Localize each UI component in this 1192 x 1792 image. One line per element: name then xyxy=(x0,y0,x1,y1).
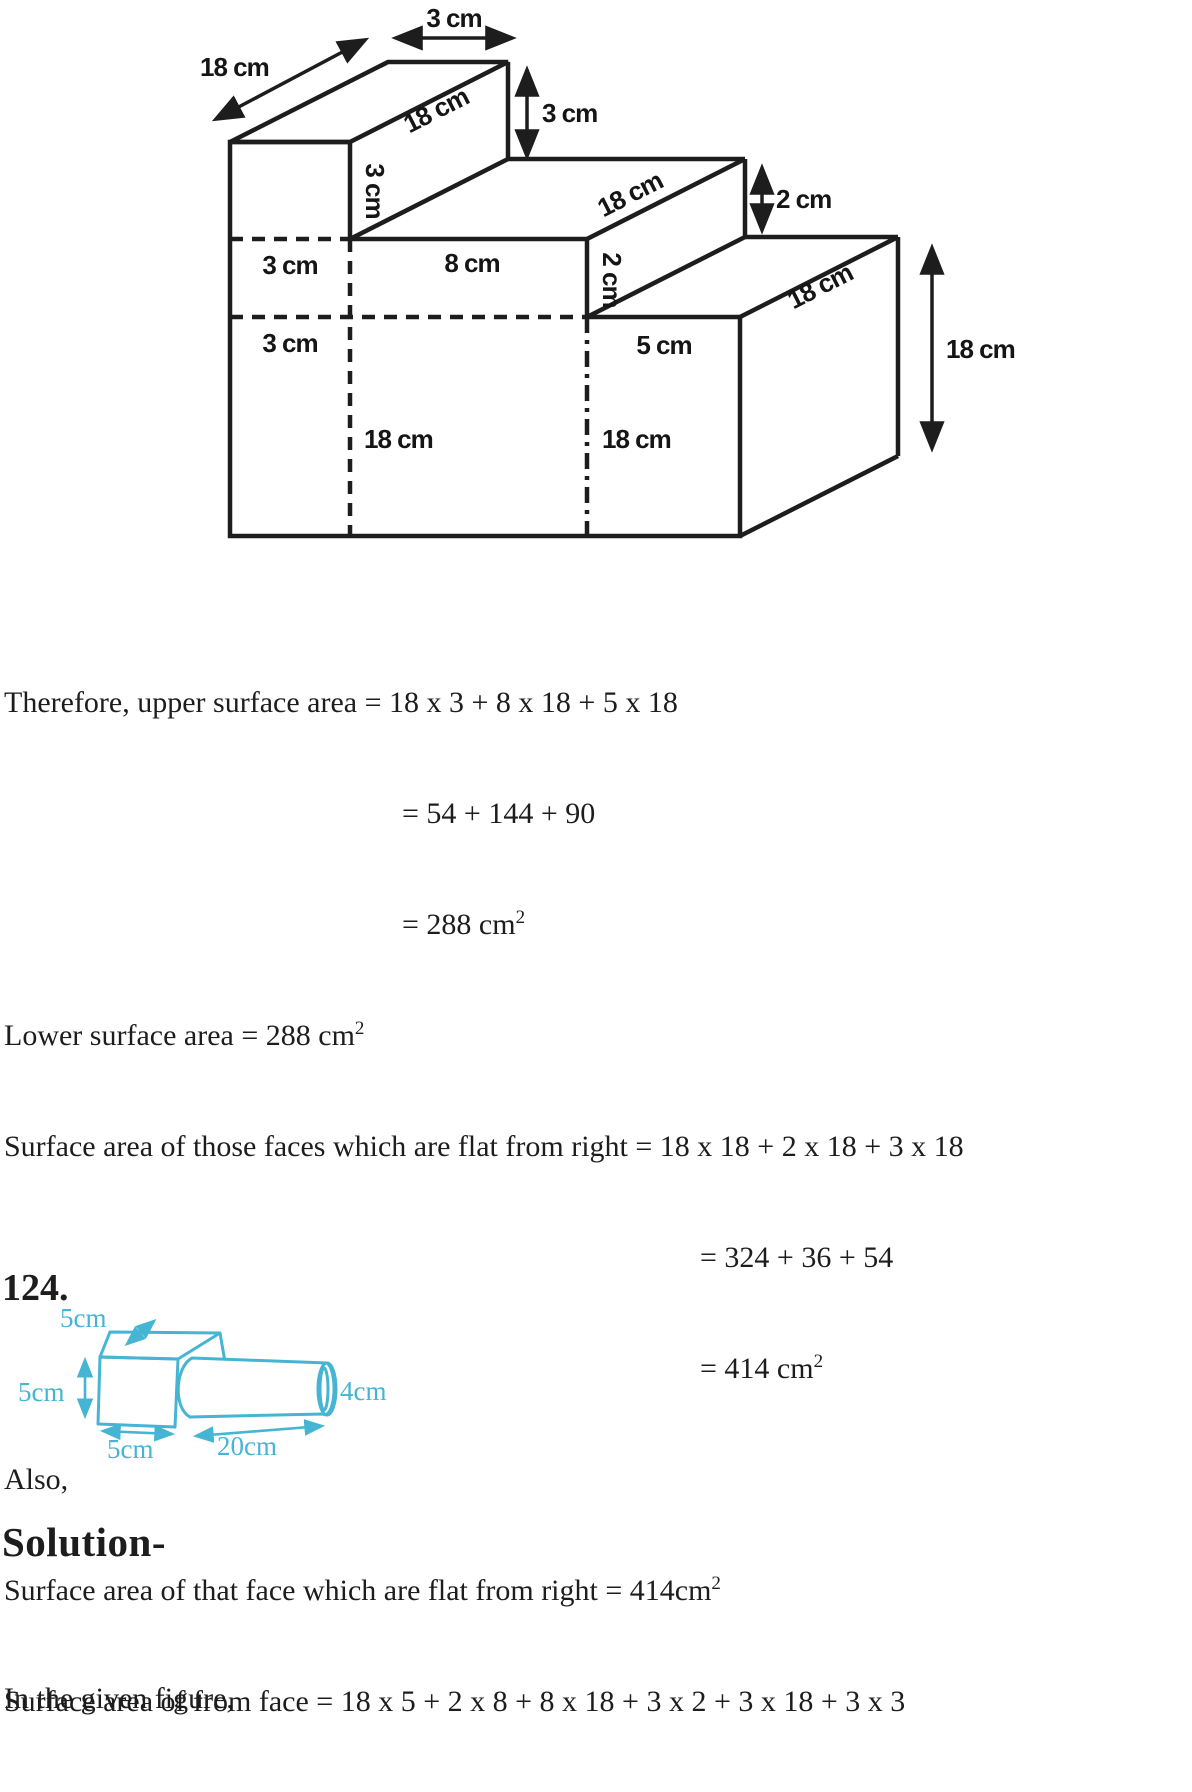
solution-line: Lower surface area = 288 cm2 xyxy=(4,1017,964,1054)
solution-line: In the given figure, xyxy=(4,1679,1077,1718)
line-text: = 324 + 36 + 54 xyxy=(700,1241,893,1274)
cylinder-body xyxy=(178,1358,334,1417)
dim-cylinder-diameter: 4cm xyxy=(340,1376,387,1406)
dim-bottom-mid-height: 18 cm xyxy=(602,424,671,454)
superscript: 2 xyxy=(814,1351,824,1372)
line-text: = 288 cm xyxy=(402,908,516,941)
dim-step2-edge: 2 cm xyxy=(597,252,627,307)
dim-step1-height: 3 cm xyxy=(542,98,597,128)
solution-line: = 288 cm2 xyxy=(402,906,964,943)
cube-cylinder-figure: 5cm 5cm 5cm 20cm 4cm xyxy=(10,1300,410,1478)
line-text: = 54 + 144 + 90 xyxy=(402,797,595,830)
line-text: Lower surface area = 288 cm xyxy=(4,1019,355,1052)
hidden-lines xyxy=(230,239,587,536)
staircase-figure: 3 cm 18 cm 18 cm 3 cm 3 cm 18 cm 2 cm 3 … xyxy=(172,6,1052,554)
dim-mid-step-depth: 18 cm xyxy=(592,165,667,223)
dim-row1-left: 3 cm xyxy=(262,250,317,280)
dim-cylinder-length: 20cm xyxy=(217,1431,277,1461)
cube-top-face xyxy=(100,1332,220,1359)
cube-front-face xyxy=(98,1357,178,1427)
superscript: 2 xyxy=(516,907,526,928)
solution-line: = 414 cm2 xyxy=(700,1350,964,1387)
solution-line: Therefore, upper surface area = 18 x 3 +… xyxy=(4,684,964,721)
dim-top-step-face-depth: 18 cm xyxy=(398,81,473,139)
solution-line: Surface area of those faces which are fl… xyxy=(4,1128,964,1165)
solution-line: = 324 + 36 + 54 xyxy=(700,1239,964,1276)
dim-mid-width: 8 cm xyxy=(444,248,499,278)
solution-block-2: In the given figure, There is a cube of … xyxy=(4,1601,1077,1792)
dim-cube-height: 5cm xyxy=(18,1377,65,1407)
dim-bottom-left-height: 18 cm xyxy=(364,424,433,454)
superscript: 2 xyxy=(355,1018,365,1039)
solution-line: = 54 + 144 + 90 xyxy=(402,795,964,832)
line-text: = 414 cm xyxy=(700,1352,814,1385)
line-text: In the given figure, xyxy=(4,1682,234,1715)
dim-top-width: 3 cm xyxy=(426,6,481,33)
dim-right-height: 18 cm xyxy=(946,334,1015,364)
line-text: Surface area of those faces which are fl… xyxy=(4,1130,964,1163)
line-text: Therefore, upper surface area = 18 x 3 +… xyxy=(4,686,678,719)
dim-cube-width: 5cm xyxy=(107,1434,154,1464)
dim-cube-depth: 5cm xyxy=(60,1303,107,1333)
dim-step2-height: 2 cm xyxy=(776,184,831,214)
dim-top-step-edge-height: 3 cm xyxy=(360,163,390,218)
dim-low-width: 5 cm xyxy=(636,330,691,360)
dim-row2-left: 3 cm xyxy=(262,328,317,358)
superscript: 2 xyxy=(711,1573,721,1594)
solution-heading: Solution- xyxy=(2,1518,166,1566)
dim-right-block-depth: 18 cm xyxy=(782,257,857,315)
cube-cylinder-solid xyxy=(98,1332,336,1427)
document-page: 3 cm 18 cm 18 cm 3 cm 3 cm 18 cm 2 cm 3 … xyxy=(0,0,1192,1792)
dim-top-left-depth: 18 cm xyxy=(200,52,269,82)
